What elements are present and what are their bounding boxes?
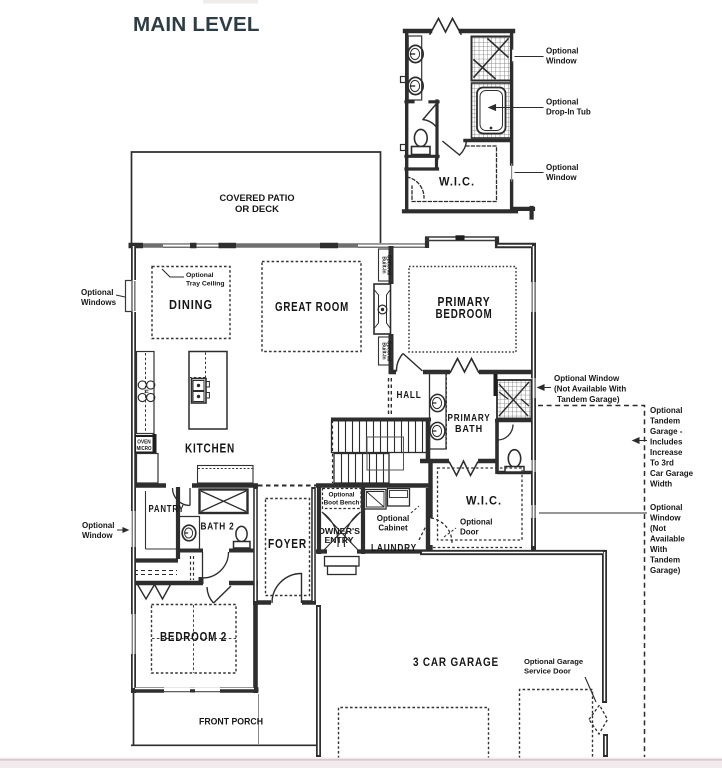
svg-text:Drop-In Tub: Drop-In Tub bbox=[546, 108, 591, 117]
svg-text:Optional: Optional bbox=[81, 288, 113, 297]
svg-text:FRONT PORCH: FRONT PORCH bbox=[199, 717, 263, 727]
svg-text:Window: Window bbox=[546, 173, 577, 182]
svg-text:Optional: Optional bbox=[186, 272, 214, 279]
svg-text:Built-In: Built-In bbox=[381, 256, 387, 273]
svg-text:W.I.C.: W.I.C. bbox=[439, 177, 475, 189]
svg-text:Tandem: Tandem bbox=[650, 417, 680, 426]
svg-text:DINING: DINING bbox=[169, 298, 213, 312]
svg-text:Width: Width bbox=[650, 480, 672, 489]
svg-text:Tandem Garage): Tandem Garage) bbox=[557, 395, 620, 404]
svg-text:Window: Window bbox=[82, 531, 113, 540]
svg-text:BEDROOM: BEDROOM bbox=[436, 307, 493, 321]
svg-text:MAIN LEVEL: MAIN LEVEL bbox=[133, 13, 260, 36]
svg-text:Optional Garage: Optional Garage bbox=[524, 657, 583, 666]
svg-text:Window: Window bbox=[650, 514, 681, 523]
svg-text:With: With bbox=[650, 545, 667, 554]
svg-text:BATH: BATH bbox=[455, 423, 483, 435]
svg-text:GREAT ROOM: GREAT ROOM bbox=[275, 300, 349, 314]
svg-text:Optional: Optional bbox=[329, 492, 355, 499]
svg-text:Increase: Increase bbox=[650, 448, 683, 457]
svg-text:FOYER: FOYER bbox=[268, 537, 307, 551]
svg-text:Optional: Optional bbox=[546, 47, 578, 56]
svg-text:LAUNDRY: LAUNDRY bbox=[371, 543, 417, 554]
svg-text:(Not Available With: (Not Available With bbox=[554, 385, 626, 394]
svg-text:W.I.C.: W.I.C. bbox=[466, 496, 502, 508]
svg-text:OVEN: OVEN bbox=[137, 439, 151, 445]
svg-text:Boot Bench: Boot Bench bbox=[324, 500, 360, 507]
svg-text:MICRO: MICRO bbox=[137, 446, 152, 452]
svg-text:Windows: Windows bbox=[81, 298, 117, 307]
svg-text:Optional: Optional bbox=[460, 518, 492, 527]
svg-text:Optional: Optional bbox=[650, 503, 682, 512]
svg-text:ENTRY: ENTRY bbox=[325, 535, 354, 545]
svg-text:BEDROOM 2: BEDROOM 2 bbox=[160, 630, 227, 644]
svg-text:OR DECK: OR DECK bbox=[235, 204, 279, 215]
svg-text:BATH 2: BATH 2 bbox=[201, 522, 235, 533]
svg-text:Door: Door bbox=[460, 528, 479, 537]
svg-text:KITCHEN: KITCHEN bbox=[185, 442, 235, 456]
svg-text:Includes: Includes bbox=[650, 438, 683, 447]
svg-text:Available: Available bbox=[650, 535, 685, 544]
svg-text:Window: Window bbox=[546, 57, 577, 66]
svg-text:PANTRY: PANTRY bbox=[149, 504, 185, 515]
svg-text:Optional Window: Optional Window bbox=[554, 374, 620, 383]
svg-text:Service Door: Service Door bbox=[524, 667, 571, 676]
svg-text:3 CAR GARAGE: 3 CAR GARAGE bbox=[413, 655, 499, 669]
svg-text:Garage): Garage) bbox=[650, 566, 681, 575]
svg-text:Optional: Optional bbox=[546, 98, 578, 107]
svg-text:Optional: Optional bbox=[650, 406, 682, 415]
svg-text:Tray Ceiling: Tray Ceiling bbox=[186, 281, 225, 288]
svg-text:Optional: Optional bbox=[546, 163, 578, 172]
svg-text:COVERED PATIO: COVERED PATIO bbox=[220, 193, 295, 204]
svg-text:Optional: Optional bbox=[377, 514, 409, 523]
svg-text:HALL: HALL bbox=[397, 390, 422, 401]
svg-text:(Not: (Not bbox=[650, 524, 666, 533]
svg-text:Garage -: Garage - bbox=[650, 427, 683, 436]
svg-text:Cabinet: Cabinet bbox=[378, 524, 408, 533]
svg-text:Car Garage: Car Garage bbox=[650, 469, 694, 478]
svg-text:Built-In: Built-In bbox=[381, 342, 387, 359]
svg-text:Tandem: Tandem bbox=[650, 556, 680, 565]
svg-text:Optional: Optional bbox=[82, 521, 114, 530]
svg-text:To 3rd: To 3rd bbox=[650, 459, 674, 468]
